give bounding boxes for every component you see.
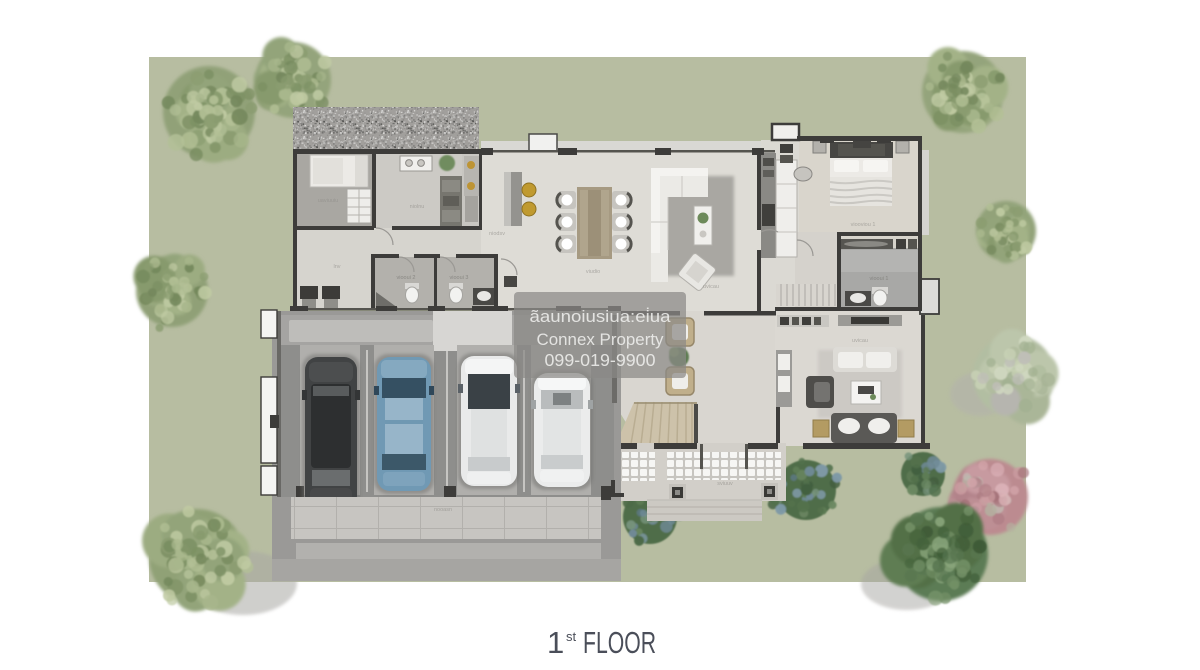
svg-text:099-019-9900: 099-019-9900 [545,350,656,370]
svg-text:viooui 3: viooui 3 [450,275,469,281]
svg-text:Connex Property: Connex Property [537,330,664,349]
svg-text:niodsv: niodsv [489,231,505,237]
svg-text:uaviuuiu: uaviuuiu [318,198,339,204]
svg-text:uvicau: uvicau [703,284,719,290]
svg-text:lnv: lnv [333,264,340,270]
svg-text:viudio: viudio [586,269,600,275]
svg-text:1: 1 [547,625,564,660]
svg-text:nooasn: nooasn [434,507,452,513]
svg-text:st: st [566,629,577,644]
svg-text:FLOOR: FLOOR [583,625,656,660]
svg-text:viooviou 1: viooviou 1 [851,222,876,228]
svg-text:sviuuv: sviuuv [717,481,733,487]
svg-text:ãaunoiusiua:ei̇ua: ãaunoiusiua:ei̇ua [530,307,672,326]
svg-text:viooui 1: viooui 1 [870,276,889,282]
svg-text:uvicau: uvicau [852,338,868,344]
svg-text:viooui 2: viooui 2 [397,275,416,281]
svg-text:niolnu: niolnu [410,204,425,210]
